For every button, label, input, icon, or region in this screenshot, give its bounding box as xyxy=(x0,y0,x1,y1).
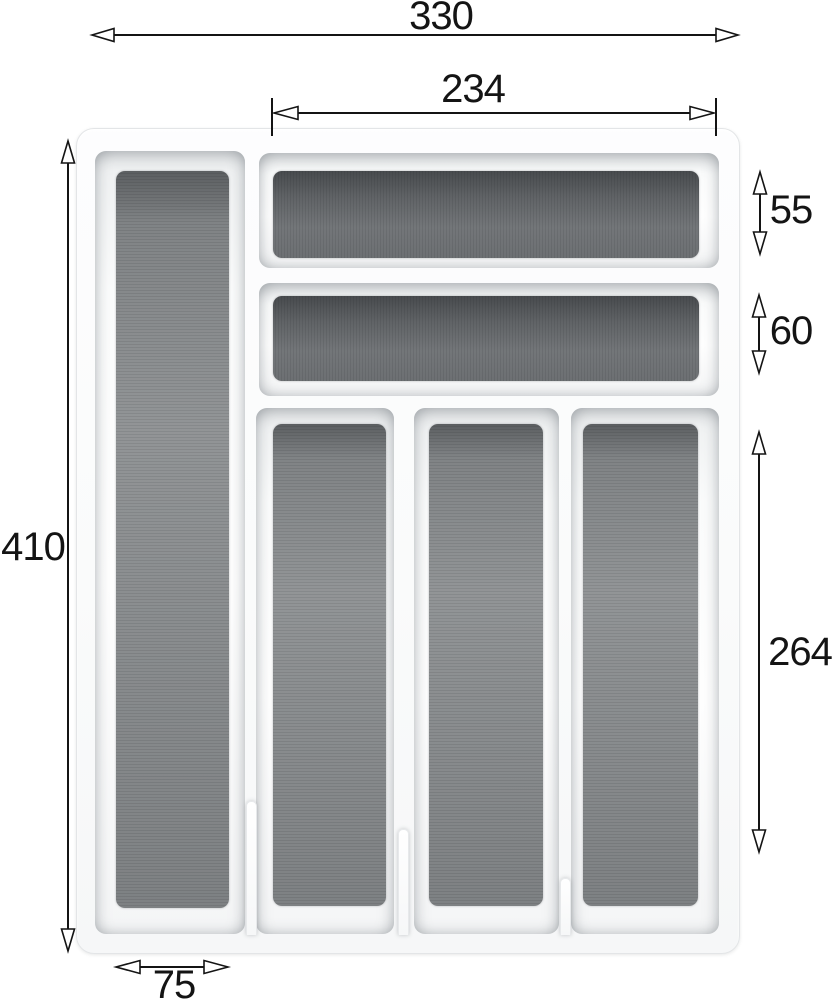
dim-label-vertical-slot-height: 264 xyxy=(768,632,832,672)
divider-ridge-3 xyxy=(560,878,571,935)
insert-top-1 xyxy=(273,171,699,258)
compartment-top-2 xyxy=(259,283,719,396)
compartment-bottom-2 xyxy=(414,408,559,934)
dim-arrow-second-slot-height xyxy=(746,292,772,376)
divider-ridge-1 xyxy=(246,801,257,935)
dim-label-left-column-width: 75 xyxy=(153,965,196,999)
compartment-bottom-3 xyxy=(571,408,719,934)
dim-label-overall-width: 330 xyxy=(409,0,473,36)
insert-bottom-3 xyxy=(583,424,698,906)
compartment-left-column xyxy=(95,151,245,934)
insert-left-column xyxy=(116,171,229,908)
dimension-drawing-canvas: 330 234 410 55 60 264 75 xyxy=(0,0,833,999)
divider-ridge-2 xyxy=(398,829,409,935)
dim-label-overall-depth: 410 xyxy=(1,527,65,567)
compartment-bottom-1 xyxy=(256,408,394,934)
dim-label-second-slot-height: 60 xyxy=(770,311,813,351)
compartment-top-1 xyxy=(259,153,719,268)
dim-label-inner-top-width: 234 xyxy=(441,69,505,109)
insert-bottom-2 xyxy=(429,424,543,906)
insert-bottom-1 xyxy=(273,424,386,906)
insert-top-2 xyxy=(273,296,699,381)
cutlery-tray xyxy=(76,128,740,954)
dim-label-top-slot-height: 55 xyxy=(770,190,813,230)
